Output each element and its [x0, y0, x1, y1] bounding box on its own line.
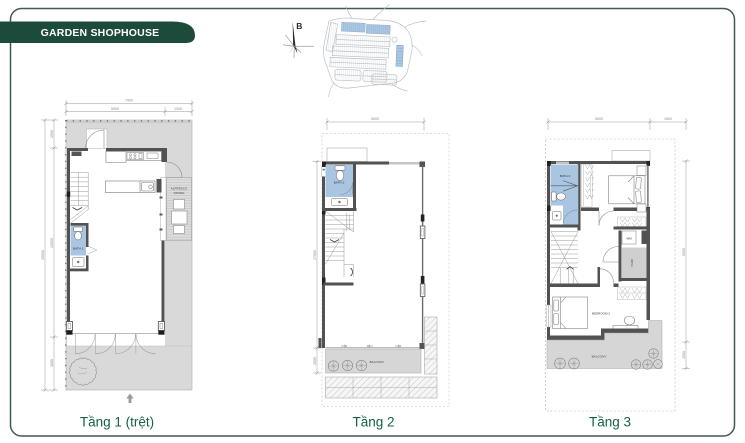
- svg-text:BATH 1: BATH 1: [73, 247, 84, 251]
- svg-text:GARDEN SHOPHOUSE: GARDEN SHOPHOUSE: [41, 27, 160, 39]
- svg-text:1500: 1500: [682, 351, 686, 359]
- svg-text:WM: WM: [626, 237, 632, 241]
- svg-text:10500: 10500: [50, 238, 54, 248]
- svg-text:BALCONY: BALCONY: [592, 355, 607, 359]
- svg-text:7900: 7900: [125, 99, 133, 103]
- svg-text:BATH 2: BATH 2: [334, 181, 345, 185]
- svg-text:17500: 17500: [313, 250, 317, 260]
- svg-text:5000: 5000: [595, 117, 603, 121]
- svg-text:Tầng 3: Tầng 3: [589, 415, 631, 430]
- svg-text:Tầng 1 (trệt): Tầng 1 (trệt): [80, 415, 154, 430]
- svg-text:15000: 15000: [41, 250, 45, 260]
- svg-text:1500: 1500: [664, 117, 672, 121]
- svg-text:BALCONY: BALCONY: [370, 360, 385, 364]
- svg-text:DINING: DINING: [174, 191, 185, 195]
- svg-text:Tầng 2: Tầng 2: [352, 415, 394, 430]
- svg-text:BEDROOM 2: BEDROOM 2: [592, 312, 610, 316]
- svg-text:3000: 3000: [50, 359, 54, 367]
- svg-text:1300: 1300: [174, 107, 182, 111]
- svg-text:5000: 5000: [371, 117, 379, 121]
- svg-text:9050: 9050: [682, 248, 686, 256]
- svg-text:5000: 5000: [111, 107, 119, 111]
- svg-text:BATH 3: BATH 3: [560, 174, 571, 178]
- svg-text:YARD: YARD: [630, 258, 634, 267]
- svg-text:1500: 1500: [50, 130, 54, 138]
- svg-text:B: B: [296, 21, 302, 31]
- svg-text:1500: 1500: [313, 357, 317, 365]
